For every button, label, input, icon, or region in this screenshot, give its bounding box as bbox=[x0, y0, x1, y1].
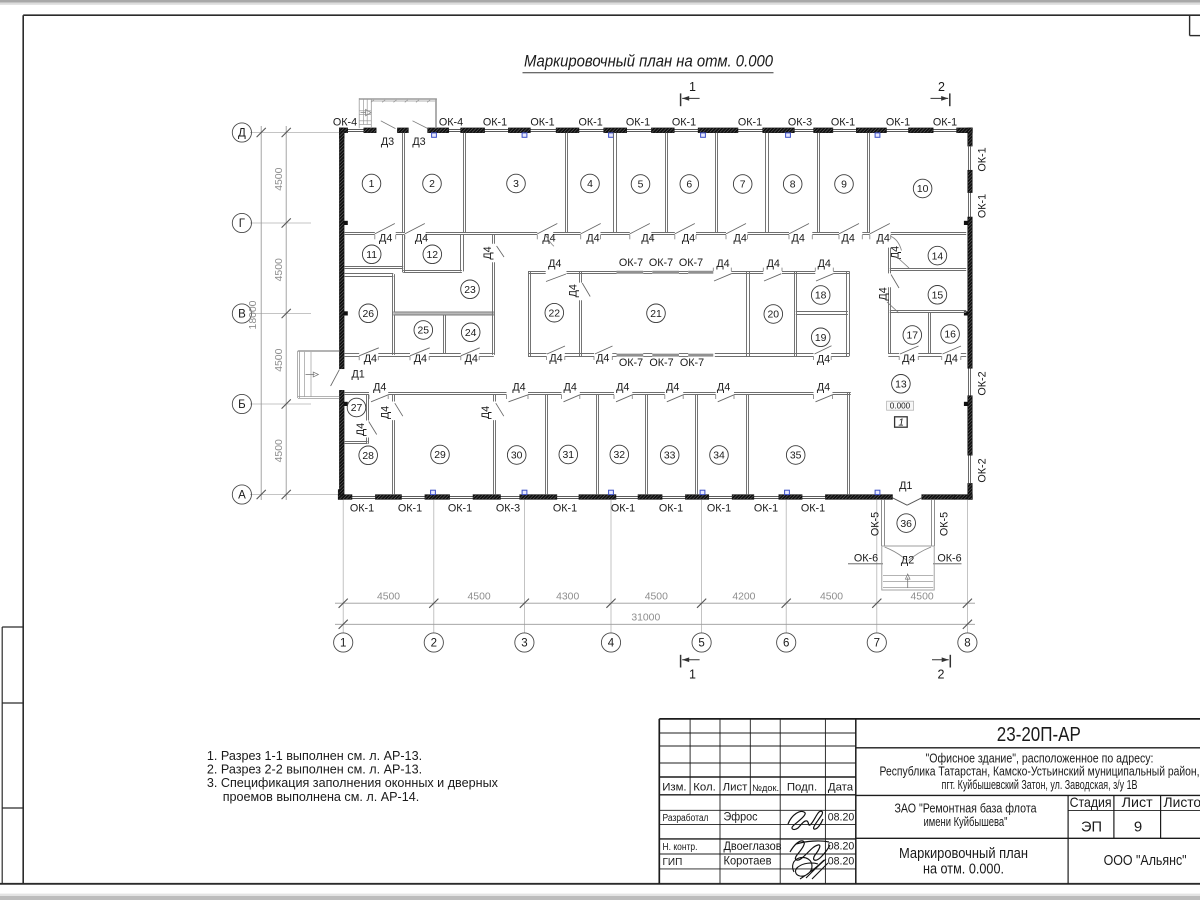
svg-text:Д4: Д4 bbox=[818, 258, 831, 270]
svg-text:20: 20 bbox=[768, 310, 780, 321]
svg-text:2: 2 bbox=[431, 638, 437, 650]
svg-text:5: 5 bbox=[638, 180, 644, 191]
svg-text:1: 1 bbox=[898, 418, 904, 429]
svg-text:ОК-6: ОК-6 bbox=[854, 553, 878, 565]
svg-text:1: 1 bbox=[689, 668, 696, 682]
svg-text:ОК-1: ОК-1 bbox=[976, 147, 988, 171]
svg-text:16: 16 bbox=[944, 330, 956, 341]
svg-text:29: 29 bbox=[434, 450, 446, 461]
svg-text:ОК-1: ОК-1 bbox=[976, 194, 988, 218]
svg-text:8: 8 bbox=[964, 638, 970, 650]
svg-text:Д: Д bbox=[238, 128, 246, 140]
svg-text:Двоеглазов: Двоеглазов bbox=[724, 839, 782, 853]
svg-text:33: 33 bbox=[664, 451, 676, 462]
svg-text:Д4: Д4 bbox=[902, 353, 915, 365]
svg-text:23: 23 bbox=[464, 285, 476, 296]
svg-text:22: 22 bbox=[549, 308, 561, 319]
svg-text:Д4: Д4 bbox=[641, 233, 654, 245]
svg-text:Д4: Д4 bbox=[512, 382, 525, 394]
svg-text:Коротаев: Коротаев bbox=[724, 854, 772, 868]
svg-text:4200: 4200 bbox=[732, 592, 755, 603]
svg-text:14: 14 bbox=[932, 251, 944, 262]
svg-text:18: 18 bbox=[815, 291, 827, 302]
svg-text:4500: 4500 bbox=[377, 592, 400, 603]
svg-text:Д1: Д1 bbox=[352, 369, 365, 381]
svg-text:4500: 4500 bbox=[274, 167, 285, 190]
svg-text:Д4: Д4 bbox=[734, 233, 747, 245]
svg-text:Б: Б bbox=[238, 399, 246, 411]
svg-text:Д4: Д4 bbox=[767, 258, 780, 270]
svg-text:Подп.: Подп. bbox=[787, 782, 817, 794]
svg-text:4500: 4500 bbox=[820, 592, 843, 603]
svg-text:15: 15 bbox=[932, 291, 944, 302]
svg-text:ОК-1: ОК-1 bbox=[672, 116, 696, 128]
svg-text:25: 25 bbox=[418, 326, 430, 337]
svg-text:ОК-1: ОК-1 bbox=[933, 116, 957, 128]
svg-text:26: 26 bbox=[363, 309, 375, 320]
svg-text:Д4: Д4 bbox=[548, 258, 561, 270]
svg-text:4: 4 bbox=[587, 179, 593, 190]
svg-text:1. Разрез 1-1 выполнен см. л.: 1. Разрез 1-1 выполнен см. л. АР-13. bbox=[207, 749, 422, 763]
svg-text:2: 2 bbox=[429, 179, 435, 190]
svg-text:№док.: №док. bbox=[752, 783, 779, 793]
svg-text:6: 6 bbox=[686, 180, 692, 191]
svg-text:ОК-7: ОК-7 bbox=[649, 357, 673, 369]
svg-text:А: А bbox=[238, 490, 246, 502]
svg-text:ООО "Альянс": ООО "Альянс" bbox=[1104, 853, 1187, 869]
svg-text:Д4: Д4 bbox=[616, 382, 629, 394]
svg-text:13: 13 bbox=[895, 380, 907, 391]
svg-text:21: 21 bbox=[650, 309, 662, 320]
svg-text:Д1: Д1 bbox=[899, 480, 912, 492]
svg-text:ОК-5: ОК-5 bbox=[938, 512, 950, 536]
svg-text:Д4: Д4 bbox=[716, 258, 729, 270]
svg-text:2. Разрез 2-2 выполнен см. л.: 2. Разрез 2-2 выполнен см. л. АР-13. bbox=[207, 763, 422, 777]
svg-text:Кол.: Кол. bbox=[693, 782, 716, 794]
svg-text:Д4: Д4 bbox=[792, 233, 805, 245]
svg-text:4300: 4300 bbox=[556, 592, 579, 603]
svg-text:Д4: Д4 bbox=[415, 233, 428, 245]
svg-text:Д4: Д4 bbox=[564, 382, 577, 394]
svg-text:Д4: Д4 bbox=[355, 423, 367, 436]
svg-text:35: 35 bbox=[790, 451, 802, 462]
svg-text:ОК-1: ОК-1 bbox=[801, 503, 825, 515]
svg-text:3: 3 bbox=[513, 179, 519, 190]
svg-text:3. Спецификация заполнения око: 3. Спецификация заполнения оконных и две… bbox=[207, 776, 499, 790]
svg-text:Д4: Д4 bbox=[465, 353, 478, 365]
svg-text:27: 27 bbox=[351, 403, 363, 414]
svg-text:1: 1 bbox=[340, 638, 346, 650]
svg-text:Стадия: Стадия bbox=[1070, 794, 1112, 810]
svg-text:Д4: Д4 bbox=[889, 246, 901, 259]
svg-text:пгт. Куйбышевский Затон, ул. З: пгт. Куйбышевский Затон, ул. Заводская, … bbox=[942, 777, 1138, 792]
svg-text:ОК-1: ОК-1 bbox=[754, 503, 778, 515]
svg-text:ОК-4: ОК-4 bbox=[333, 116, 357, 128]
svg-text:Д3: Д3 bbox=[381, 136, 394, 148]
svg-text:ОК-1: ОК-1 bbox=[398, 503, 422, 515]
svg-text:Д4: Д4 bbox=[542, 233, 555, 245]
svg-text:ОК-1: ОК-1 bbox=[611, 503, 635, 515]
svg-text:ОК-2: ОК-2 bbox=[976, 458, 988, 482]
svg-text:ОК-1: ОК-1 bbox=[530, 116, 554, 128]
svg-text:ОК-3: ОК-3 bbox=[496, 503, 520, 515]
svg-text:Изм.: Изм. bbox=[662, 782, 686, 794]
svg-text:на отм. 0.000.: на отм. 0.000. bbox=[923, 861, 1004, 877]
svg-text:4500: 4500 bbox=[468, 592, 491, 603]
svg-text:Листов: Листов bbox=[1164, 794, 1200, 810]
svg-text:ОК-1: ОК-1 bbox=[707, 503, 731, 515]
svg-text:Д4: Д4 bbox=[482, 246, 494, 259]
svg-text:4500: 4500 bbox=[911, 592, 934, 603]
svg-text:ОК-1: ОК-1 bbox=[553, 503, 577, 515]
svg-text:3: 3 bbox=[521, 638, 527, 650]
svg-text:Эфрос: Эфрос bbox=[724, 809, 758, 823]
svg-text:32: 32 bbox=[614, 450, 626, 461]
svg-text:Д4: Д4 bbox=[373, 382, 386, 394]
svg-text:Д4: Д4 bbox=[379, 233, 392, 245]
svg-text:ОК-4: ОК-4 bbox=[439, 116, 463, 128]
svg-text:18000: 18000 bbox=[248, 300, 259, 329]
svg-text:4500: 4500 bbox=[274, 439, 285, 462]
svg-text:Д4: Д4 bbox=[480, 406, 492, 419]
svg-text:ОК-1: ОК-1 bbox=[578, 116, 602, 128]
svg-text:31: 31 bbox=[563, 450, 575, 461]
svg-text:08.20: 08.20 bbox=[828, 855, 855, 867]
svg-text:ОК-1: ОК-1 bbox=[659, 503, 683, 515]
svg-text:2: 2 bbox=[938, 80, 945, 94]
svg-text:0.000: 0.000 bbox=[890, 401, 911, 410]
svg-text:ОК-1: ОК-1 bbox=[483, 116, 507, 128]
svg-text:36: 36 bbox=[900, 519, 912, 530]
svg-text:Д4: Д4 bbox=[842, 233, 855, 245]
svg-text:Д4: Д4 bbox=[568, 284, 580, 297]
svg-text:Д4: Д4 bbox=[817, 354, 830, 366]
svg-text:Маркировочный план на отм. 0.0: Маркировочный план на отм. 0.000 bbox=[524, 52, 774, 71]
svg-text:08.20: 08.20 bbox=[828, 811, 855, 823]
svg-text:Д4: Д4 bbox=[549, 353, 562, 365]
svg-text:31000: 31000 bbox=[631, 613, 660, 624]
svg-text:Н. контр.: Н. контр. bbox=[663, 842, 698, 853]
svg-text:Дата: Дата bbox=[828, 782, 854, 794]
svg-text:ОК-1: ОК-1 bbox=[831, 116, 855, 128]
svg-text:ОК-3: ОК-3 bbox=[788, 116, 812, 128]
svg-text:ГИП: ГИП bbox=[663, 857, 683, 868]
svg-text:ОК-6: ОК-6 bbox=[937, 553, 961, 565]
svg-text:2: 2 bbox=[938, 668, 945, 682]
svg-text:Маркировочный план: Маркировочный план bbox=[899, 846, 1028, 862]
svg-text:ОК-1: ОК-1 bbox=[448, 503, 472, 515]
svg-text:ОК-1: ОК-1 bbox=[886, 116, 910, 128]
svg-text:17: 17 bbox=[907, 331, 919, 342]
svg-text:9: 9 bbox=[1134, 819, 1142, 836]
svg-text:ОК-7: ОК-7 bbox=[619, 257, 643, 269]
svg-text:5: 5 bbox=[698, 638, 704, 650]
svg-text:ЭП: ЭП bbox=[1081, 819, 1102, 836]
svg-text:Д4: Д4 bbox=[414, 353, 427, 365]
svg-text:8: 8 bbox=[790, 180, 796, 191]
svg-text:Д4: Д4 bbox=[682, 233, 695, 245]
svg-text:34: 34 bbox=[713, 451, 725, 462]
svg-text:имени Куйбышева": имени Куйбышева" bbox=[924, 814, 1008, 829]
svg-text:ОК-7: ОК-7 bbox=[679, 257, 703, 269]
svg-text:ОК-1: ОК-1 bbox=[350, 503, 374, 515]
svg-text:Г: Г bbox=[239, 218, 246, 230]
svg-text:Д4: Д4 bbox=[817, 382, 830, 394]
svg-text:ОК-7: ОК-7 bbox=[619, 357, 643, 369]
svg-text:Д4: Д4 bbox=[877, 287, 889, 300]
svg-text:23-20П-АР: 23-20П-АР bbox=[997, 724, 1081, 746]
svg-text:Д4: Д4 bbox=[877, 233, 890, 245]
svg-text:Лист: Лист bbox=[723, 782, 749, 794]
svg-text:Д3: Д3 bbox=[412, 136, 425, 148]
svg-text:Д4: Д4 bbox=[945, 353, 958, 365]
svg-text:Д4: Д4 bbox=[596, 353, 609, 365]
svg-text:ОК-5: ОК-5 bbox=[870, 512, 882, 536]
svg-text:08.20: 08.20 bbox=[828, 841, 855, 853]
svg-text:ОК-7: ОК-7 bbox=[680, 357, 704, 369]
svg-text:7: 7 bbox=[874, 638, 880, 650]
svg-text:10: 10 bbox=[917, 184, 929, 195]
svg-text:9: 9 bbox=[841, 180, 847, 191]
svg-text:Лист: Лист bbox=[1122, 794, 1154, 810]
svg-text:ОК-1: ОК-1 bbox=[738, 116, 762, 128]
svg-text:28: 28 bbox=[362, 451, 374, 462]
svg-text:проемов выполнена см. л. АР-14: проемов выполнена см. л. АР-14. bbox=[223, 790, 420, 804]
svg-text:Д4: Д4 bbox=[666, 382, 679, 394]
svg-text:ОК-7: ОК-7 bbox=[649, 257, 673, 269]
svg-text:Д4: Д4 bbox=[586, 233, 599, 245]
svg-text:11: 11 bbox=[366, 250, 377, 261]
svg-text:4500: 4500 bbox=[274, 258, 285, 281]
svg-text:ОК-1: ОК-1 bbox=[626, 116, 650, 128]
svg-text:4: 4 bbox=[608, 638, 615, 650]
svg-text:6: 6 bbox=[783, 638, 789, 650]
svg-text:В: В bbox=[238, 309, 246, 321]
svg-text:Д4: Д4 bbox=[717, 382, 730, 394]
svg-text:1: 1 bbox=[689, 80, 696, 94]
svg-text:4500: 4500 bbox=[274, 348, 285, 371]
svg-text:7: 7 bbox=[740, 180, 746, 191]
svg-text:12: 12 bbox=[427, 250, 439, 261]
svg-text:19: 19 bbox=[815, 333, 827, 344]
svg-text:Д2: Д2 bbox=[901, 555, 914, 567]
svg-text:Д4: Д4 bbox=[379, 406, 391, 419]
svg-text:30: 30 bbox=[511, 451, 523, 462]
svg-text:Разработал: Разработал bbox=[663, 812, 709, 824]
svg-text:4500: 4500 bbox=[645, 592, 668, 603]
svg-text:Д4: Д4 bbox=[364, 353, 377, 365]
svg-text:24: 24 bbox=[465, 328, 477, 339]
svg-text:ОК-2: ОК-2 bbox=[976, 371, 988, 395]
svg-text:1: 1 bbox=[369, 179, 375, 190]
